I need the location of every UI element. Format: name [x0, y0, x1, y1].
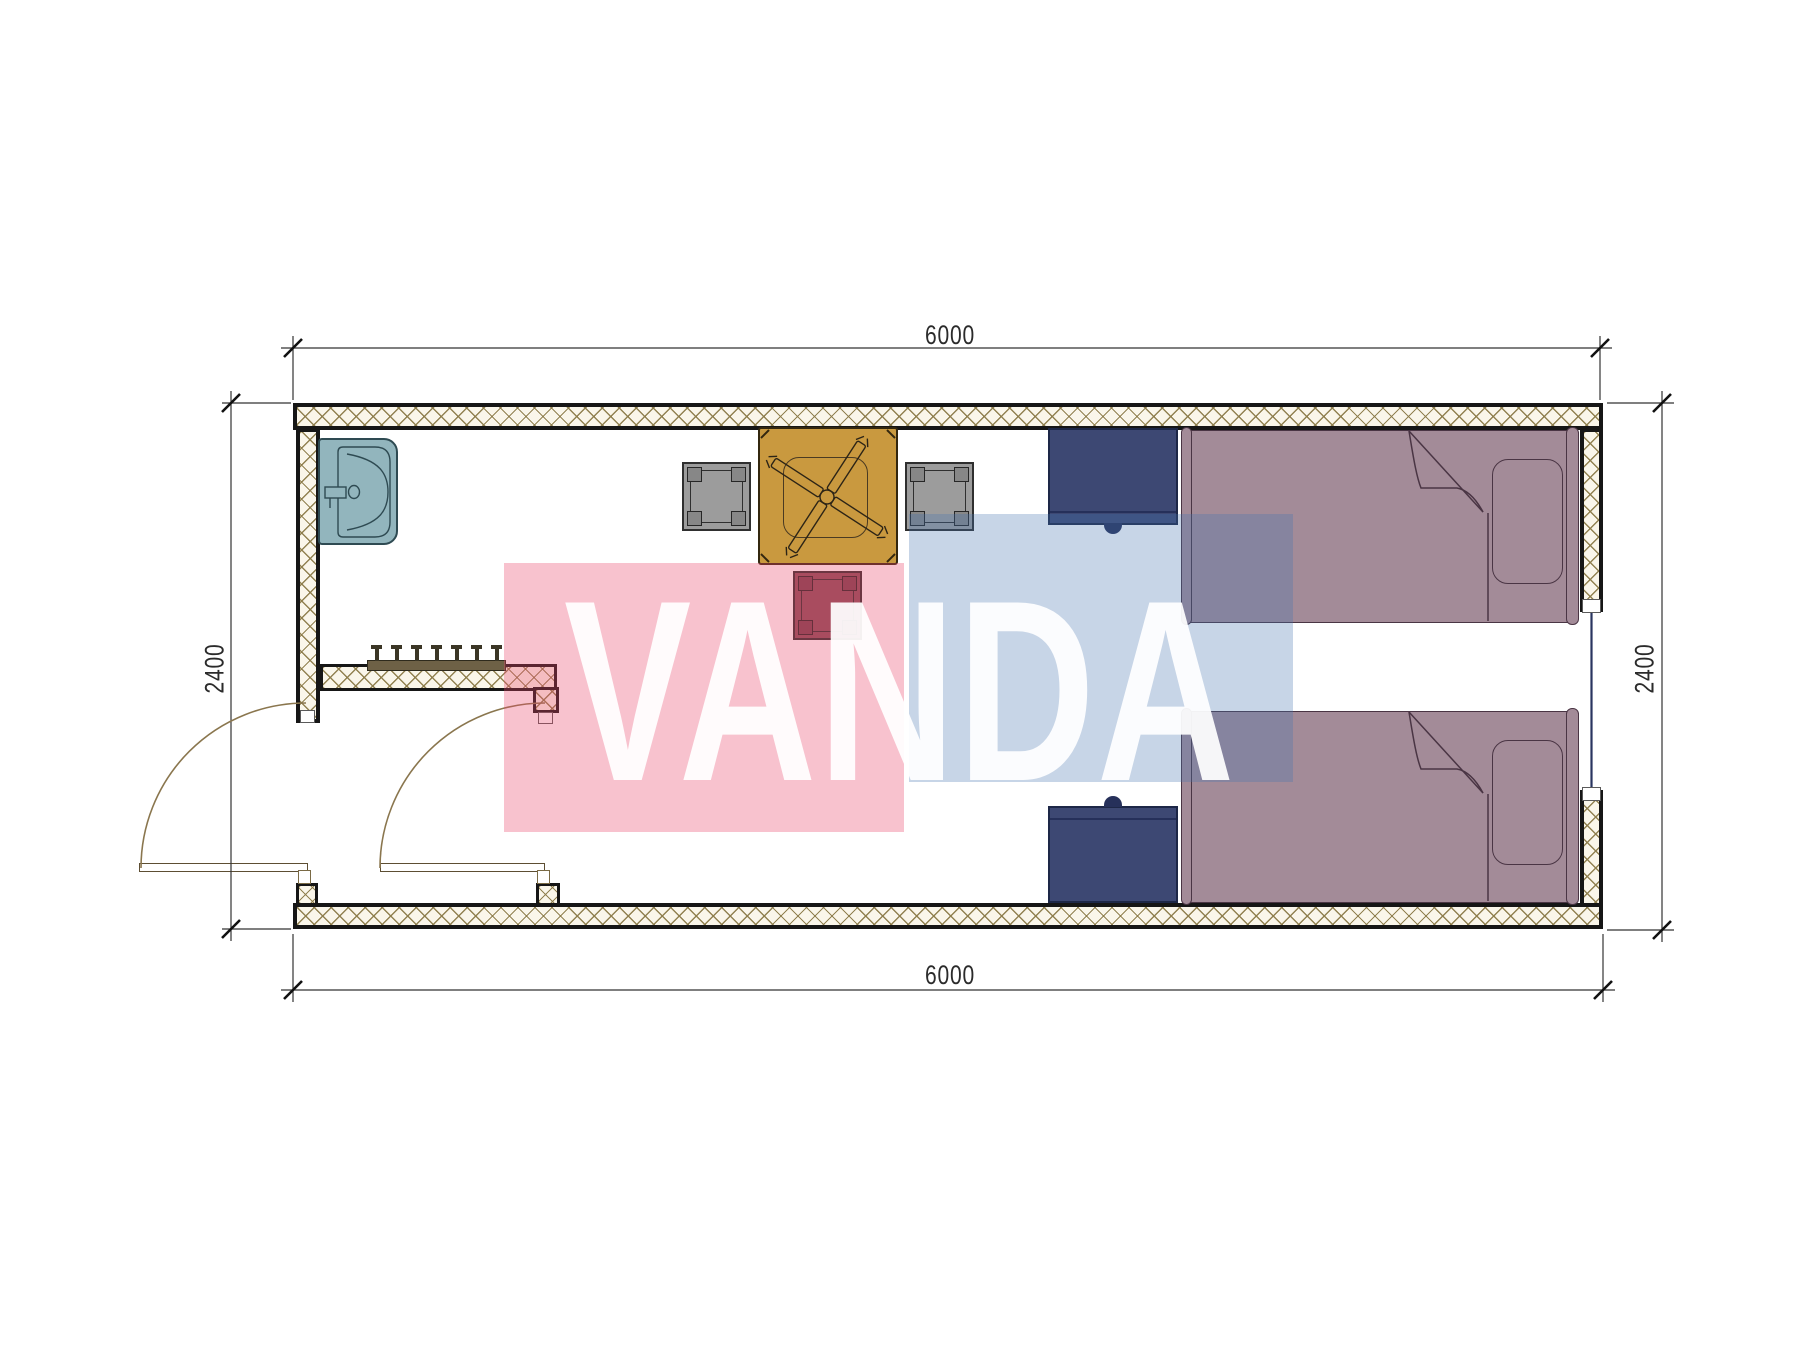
door-frame-tab-left-wall	[300, 710, 315, 723]
door-jamb-left	[296, 883, 318, 906]
window-frame-tab-top	[1582, 599, 1601, 613]
dim-left: 2400	[200, 633, 231, 703]
wall-top	[293, 403, 1603, 430]
bed-top-pillow	[1492, 459, 1563, 584]
nightstand-top-rail	[1050, 511, 1176, 513]
door-hinge-vestibule	[537, 870, 550, 884]
door-jamb-right	[536, 883, 560, 906]
dim-bottom: 6000	[915, 960, 985, 991]
sink	[318, 438, 398, 545]
dining-table-top-edge	[783, 457, 868, 538]
dim-right: 2400	[1630, 633, 1661, 703]
door-swing-arcs	[141, 703, 545, 868]
coat-rack	[367, 660, 506, 671]
wall-left	[296, 428, 320, 723]
wall-bottom	[293, 903, 1603, 929]
bed-bottom-pillow	[1492, 740, 1563, 865]
door-leaf-vestibule	[380, 863, 545, 872]
window-frame-tab-bottom	[1582, 787, 1601, 801]
bed-bottom-headboard	[1566, 708, 1579, 905]
door-hinge-exterior	[298, 870, 311, 884]
chair-left	[682, 462, 751, 531]
door-leaf-exterior	[139, 863, 308, 872]
bed-top-headboard	[1566, 427, 1579, 625]
floor-plan-canvas: 6000 6000 2400 2400 VANDA	[0, 0, 1800, 1350]
watermark-text: VANDA	[641, 565, 1159, 815]
dim-top: 6000	[915, 320, 985, 351]
wall-right-upper	[1580, 428, 1603, 612]
